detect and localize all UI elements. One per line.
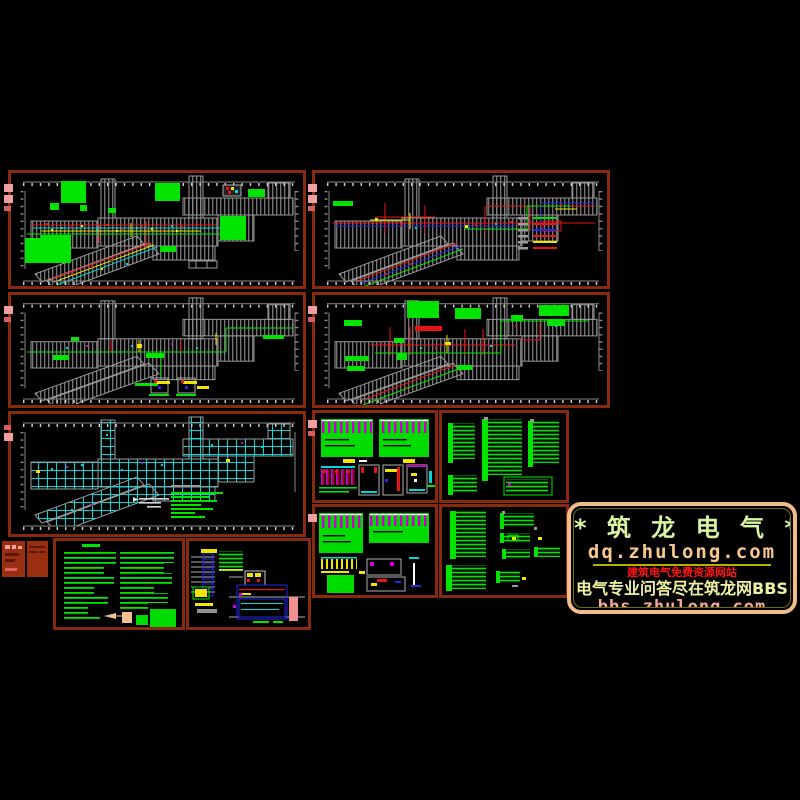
cad-drawing-art [315,295,607,405]
binding-marks [4,181,20,211]
zhulong-main-banner: 电气专业问答尽在筑龙网BBS [574,579,790,598]
panel-schedules-2 [312,504,438,598]
cad-drawing-art [442,507,566,595]
zhulong-logo-card: * 筑 龙 电 气 * dq.zhulong.com 建筑电气免费资源网站 电气… [567,502,797,614]
zhulong-dq-url: dq.zhulong.com [574,542,790,563]
zhulong-red-banner: 建筑电气免费资源网站 [574,567,790,579]
zhulong-brand-title: * 筑 龙 电 气 * [574,514,790,542]
cad-drawing-art [315,413,435,500]
notes-panel [53,538,185,630]
binding-marks [308,417,324,436]
cad-preview-canvas: * 筑 龙 电 气 * dq.zhulong.com 建筑电气免费资源网站 电气… [0,0,800,800]
cad-drawing-art [315,507,435,595]
floor-plan-panel-1 [8,170,306,289]
cad-drawing-art [442,413,566,500]
title-stamp-1 [2,541,25,577]
cad-drawing-art [315,173,607,286]
floor-plan-panel-2 [312,170,610,289]
title-stamp-2 [27,541,48,577]
cad-drawing-art [11,173,303,286]
detail-schematic-panel [186,538,311,630]
binding-marks [308,181,324,211]
cad-drawing-art [11,414,303,534]
zhulong-bbs-url: bbs.zhulong.com [574,598,790,608]
cad-drawing-art [11,295,303,405]
cad-drawing-art [189,541,308,627]
panel-schedules-1 [312,410,438,503]
floor-plan-panel-4 [312,292,610,408]
binding-marks [308,303,324,322]
zhulong-logo-inner-frame: * 筑 龙 电 气 * dq.zhulong.com 建筑电气免费资源网站 电气… [573,508,791,608]
floor-plan-panel-3 [8,292,306,408]
cad-drawing-art [56,541,182,627]
binding-marks [4,303,20,322]
grid-plan-panel [8,411,306,537]
riser-diagrams-1 [439,410,569,503]
riser-diagrams-2 [439,504,569,598]
binding-marks [308,511,324,522]
binding-marks [4,422,20,441]
